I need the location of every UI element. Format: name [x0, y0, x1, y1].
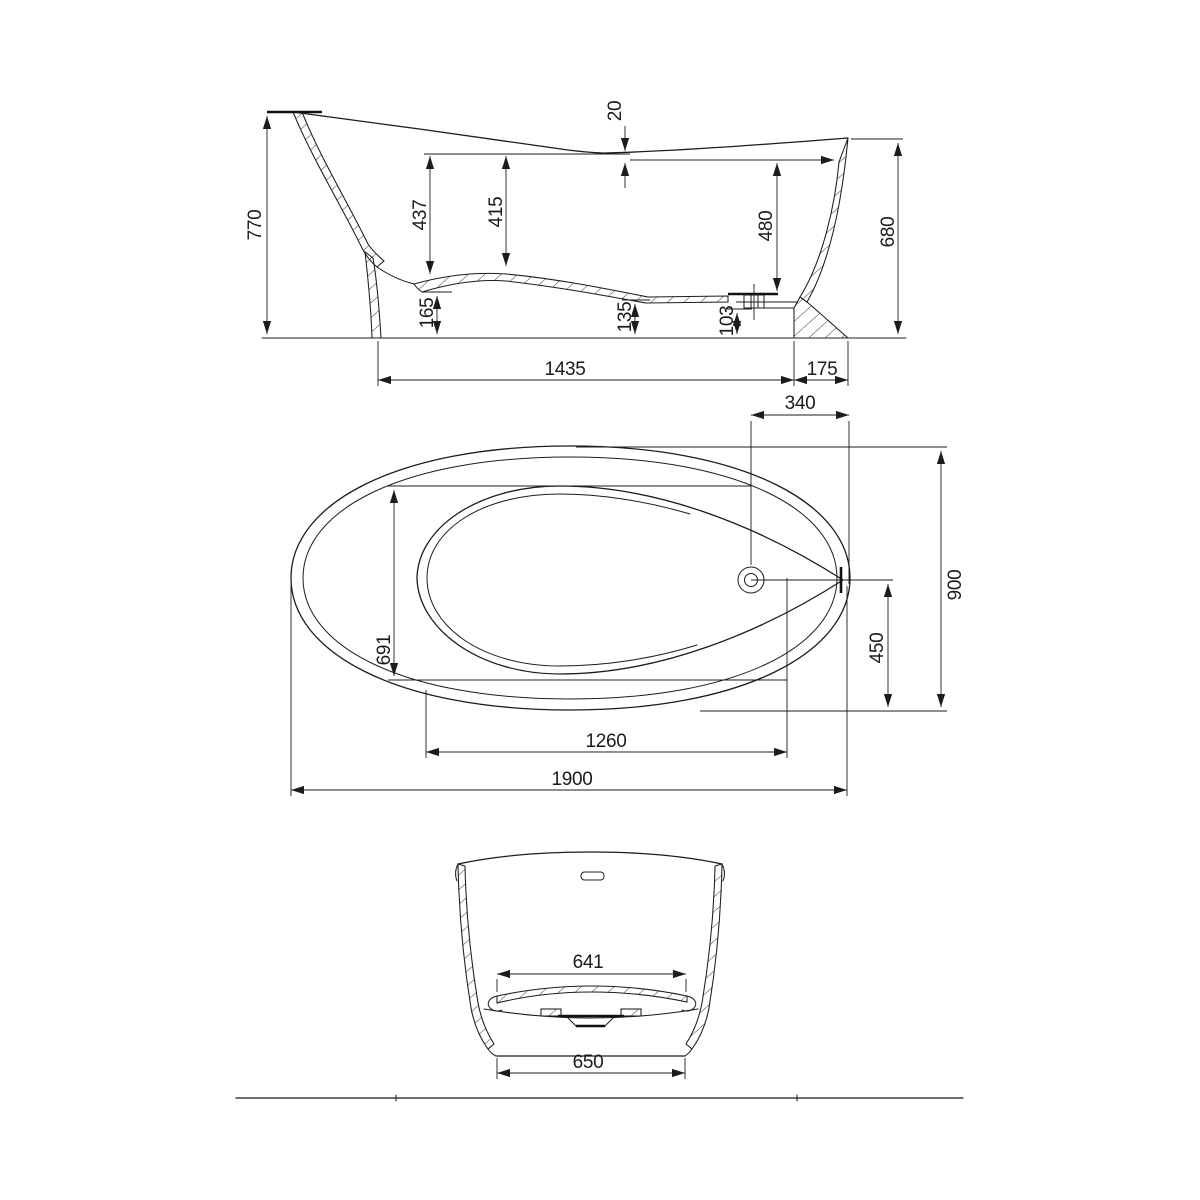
dim-side-bottom-front-label: 175: [807, 359, 838, 380]
plan-basin-floor-edge: [427, 494, 697, 666]
dim-plan-drain-to-side-label: 450: [867, 633, 888, 664]
dim-side-floor-front-label: 103: [717, 306, 738, 337]
side-elevation-view: 770 20 437 415 480 680 165 135 103 1435: [245, 101, 906, 386]
dim-plan-overall-width-exts: [576, 447, 947, 711]
dim-plan-overall-length-exts: [291, 586, 847, 796]
dim-side-overall-height-label: 770: [245, 210, 266, 241]
side-front-foot-section: [794, 297, 848, 338]
bathtub-technical-drawing: 770 20 437 415 480 680 165 135 103 1435: [0, 0, 1200, 1200]
end-top-rim-curve: [458, 852, 722, 864]
dim-side-floor-back-label: 165: [417, 298, 438, 329]
end-elevation-view: 641 650: [456, 852, 725, 1079]
plan-view: 340 900 691 450 1260 1900: [291, 393, 966, 796]
dim-plan-overall-width-label: 900: [945, 570, 966, 601]
side-wall-to-floor-curve: [377, 267, 414, 284]
side-back-wall-section: [293, 112, 384, 267]
dim-side-front-depth-label: 480: [756, 211, 777, 242]
dim-side-bottom-ext-lines: [378, 341, 848, 386]
dim-side-front-height-label: 680: [878, 217, 899, 248]
dim-side-rim-drop-label: 20: [605, 101, 626, 122]
dim-plan-overall-length-label: 1900: [551, 769, 592, 790]
dim-side-bottom-length-label: 1435: [544, 359, 585, 380]
side-front-wall-section: [800, 138, 848, 302]
side-drain-fitting-ribs: [751, 295, 758, 308]
dim-side-back-depth-label: 437: [410, 200, 431, 231]
side-drain-centerline: [736, 284, 798, 320]
dim-side-mid-depth-label: 415: [486, 197, 507, 228]
drawing-sheet: 770 20 437 415 480 680 165 135 103 1435: [0, 0, 1200, 1200]
dim-plan-basin-width-label: 691: [374, 635, 395, 666]
dim-plan-basin-length-label: 1260: [585, 731, 626, 752]
end-overflow-slot: [581, 872, 604, 880]
dim-end-floor-width-label: 641: [573, 952, 604, 973]
end-left-wall-section: [458, 864, 494, 1049]
side-top-rim-curve: [293, 112, 848, 153]
sheet-ground-line-group: [236, 1095, 963, 1101]
dim-plan-basin-width-exts: [388, 486, 787, 680]
dim-plan-drain-offset-label: 340: [785, 393, 816, 414]
end-right-wall-section: [686, 864, 722, 1049]
side-floor-section: [414, 273, 728, 303]
end-floor-section: [497, 986, 687, 1003]
dim-end-base-width-label: 650: [573, 1052, 604, 1073]
dim-side-floor-mid-label: 135: [615, 302, 636, 333]
